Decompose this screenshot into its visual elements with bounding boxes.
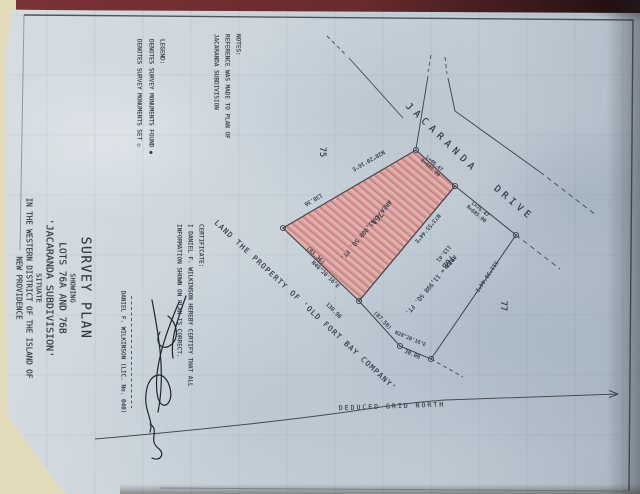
plan-subdivision: 'JACARANDA SUBDIVISION' bbox=[43, 138, 56, 438]
certificate-line1: I DANIEL F. WILKINSON HEREBY CERTIFY THA… bbox=[185, 224, 196, 416]
photo-shadow-right bbox=[606, 0, 640, 494]
road-edge-upper-east-dash bbox=[445, 57, 447, 74]
road-edge-upper-west-dash bbox=[428, 55, 431, 72]
road-near-edge-dash bbox=[516, 235, 560, 269]
plan-title: SURVEY PLAN bbox=[77, 138, 93, 438]
plan-island: NEW PROVIDENCE bbox=[14, 138, 24, 438]
legend-set-item: DENOTES SURVEY MONUMENTS SET ○ bbox=[133, 39, 145, 171]
notes-heading: NOTES: bbox=[233, 34, 244, 156]
certificate-heading: CERTIFICATE: bbox=[196, 224, 207, 416]
plan-district: IN THE WESTERN DISTRICT OF THE ISLAND OF bbox=[24, 138, 34, 438]
monument-set-icon: ○ bbox=[136, 144, 142, 147]
survey-plan-photo: SURVEY PLAN SHOWING LOTS 76A AND 76B 'JA… bbox=[0, 0, 640, 494]
lot75-side-line bbox=[349, 58, 403, 118]
lot-75-label: 75 bbox=[316, 147, 326, 157]
certificate-block: CERTIFICATE: I DANIEL F. WILKINSON HEREB… bbox=[174, 224, 207, 416]
lot-77-label: 77 bbox=[497, 301, 507, 311]
legend-found-label: DENOTES SURVEY MONUMENTS FOUND bbox=[148, 39, 155, 147]
road-far-edge-dash bbox=[540, 172, 596, 215]
photo-shadow-bottom bbox=[120, 484, 640, 494]
notes-block: NOTES: REFERENCE WAS MADE TO PLAN OF JAC… bbox=[211, 34, 244, 156]
title-block: SURVEY PLAN SHOWING LOTS 76A AND 76B 'JA… bbox=[14, 138, 93, 438]
plan-showing: SHOWING bbox=[68, 138, 77, 438]
plan-situate: SITUATE bbox=[34, 138, 43, 438]
plan-drawing bbox=[0, 0, 640, 494]
boundary-continuation-dash bbox=[431, 359, 463, 377]
legend-block: LEGEND: DENOTES SURVEY MONUMENTS FOUND ●… bbox=[133, 39, 168, 171]
notes-line2: JACARANDA SUBDIVISION bbox=[211, 34, 222, 156]
monument-found-icon: ● bbox=[148, 151, 154, 154]
notes-line1: REFERENCE WAS MADE TO PLAN OF bbox=[222, 34, 233, 156]
legend-set-label: DENOTES SURVEY MONUMENTS SET bbox=[136, 39, 143, 140]
legend-found-item: DENOTES SURVEY MONUMENTS FOUND ● bbox=[145, 39, 157, 171]
lot75-side-line-dash bbox=[327, 36, 346, 55]
signatory-name: DANIEL F. WILKINSON (LIC. No. 040) bbox=[119, 291, 126, 414]
road-edge-upper-east bbox=[448, 78, 455, 111]
legend-heading: LEGEND: bbox=[157, 39, 168, 171]
certificate-line2: INFORMATION SHOWN ON PLAN IS CORRECT. bbox=[174, 224, 185, 416]
plan-lots: LOTS 76A AND 76B bbox=[56, 138, 68, 438]
